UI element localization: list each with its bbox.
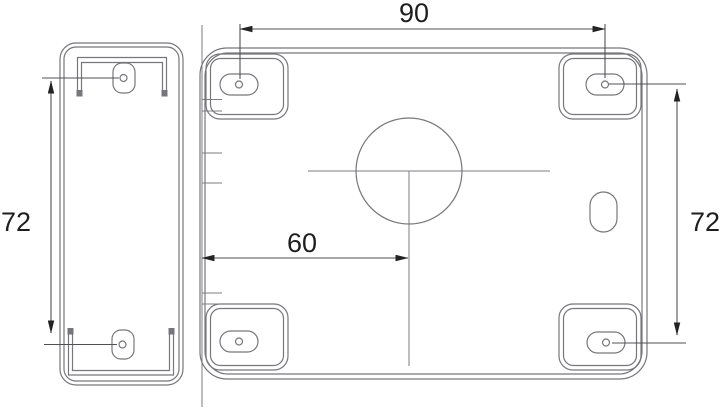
strike-plate-inner-outline [64, 47, 179, 381]
mounting-pad-top-left [206, 54, 288, 119]
pad-inner [564, 59, 637, 115]
strike-plate-bottom-left-tab [68, 328, 74, 335]
base-plate-outer-outline [200, 48, 647, 379]
dim-label-72-right: 72 [690, 207, 720, 237]
pad-outer [206, 304, 288, 370]
screw-slot-center [602, 81, 609, 88]
dimensions: 90 72 60 72 [1, 0, 720, 345]
dim-label-72-left: 72 [1, 207, 31, 237]
technical-drawing: 90 72 60 72 [0, 0, 725, 413]
strike-top-screw-hole-center [120, 75, 127, 82]
strike-plate-bottom-flange-outer [69, 330, 174, 375]
mounting-pad-bottom-right [559, 304, 641, 370]
pad-outer [559, 54, 641, 119]
screw-slot [220, 331, 258, 352]
strike-plate-top-flange-inner [82, 63, 163, 97]
pad-inner [211, 59, 284, 115]
dim-top-width: 90 [240, 0, 605, 79]
pad-inner [564, 309, 637, 366]
strike-plate-top-left-tab [77, 90, 83, 97]
screw-slot-center [603, 339, 610, 346]
strike-plate [60, 43, 183, 385]
screw-slot-center [236, 338, 243, 345]
dim-center-offset: 60 [202, 228, 408, 258]
screw-slot [220, 74, 258, 95]
base-plate-inner-outline [205, 53, 642, 374]
dim-label-60: 60 [287, 228, 317, 258]
dim-label-90: 90 [399, 0, 429, 28]
lock-base-plate [200, 48, 647, 379]
pad-outer [559, 304, 641, 370]
strike-plate-bottom-flange-inner [73, 330, 170, 371]
pad-outer [206, 54, 288, 119]
strike-plate-bottom-right-tab [169, 328, 175, 335]
screw-slot-center [236, 81, 243, 88]
strike-plate-top-right-tab [162, 90, 168, 97]
mounting-pad-bottom-left [206, 304, 288, 370]
strike-bottom-screw-hole-center [119, 341, 126, 348]
mounting-pad-top-right [559, 54, 641, 119]
drawing-canvas: 90 72 60 72 [0, 0, 725, 413]
side-oval-opening [590, 192, 617, 232]
